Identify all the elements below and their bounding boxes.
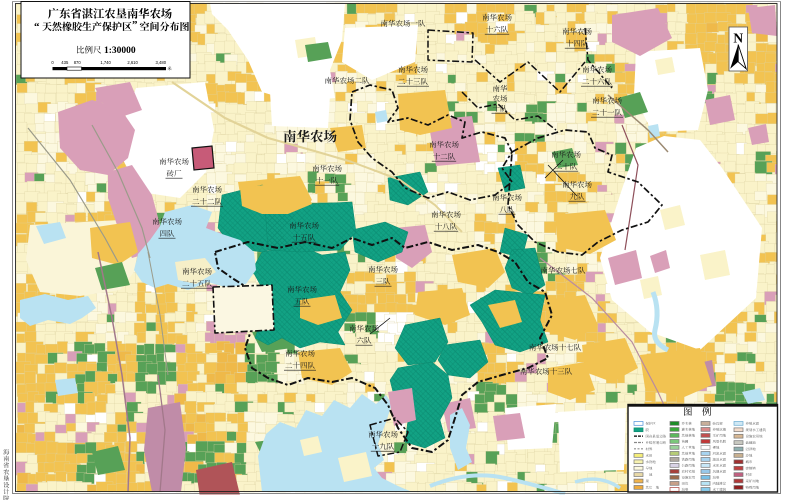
svg-text:2,610: 2,610 — [127, 60, 138, 65]
svg-text:870: 870 — [74, 60, 82, 65]
svg-text:3,480: 3,480 — [156, 60, 167, 65]
svg-text:N: N — [733, 31, 743, 46]
svg-text:1:30000: 1:30000 — [104, 46, 136, 56]
svg-text:”: ” — [132, 19, 138, 31]
svg-text:435: 435 — [61, 60, 69, 65]
svg-text:1,740: 1,740 — [100, 60, 111, 65]
svg-text:“: “ — [34, 21, 40, 33]
